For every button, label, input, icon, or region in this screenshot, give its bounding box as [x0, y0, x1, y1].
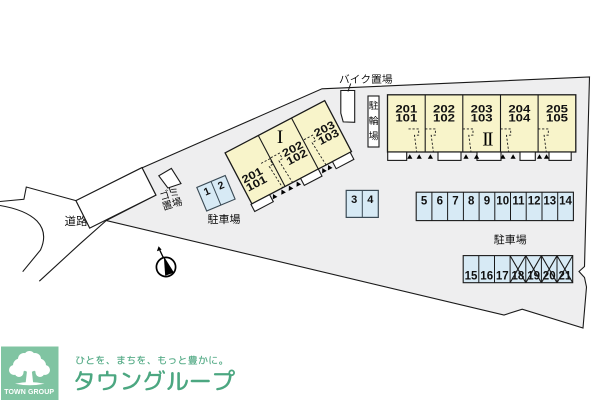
- svg-text:104: 104: [508, 112, 530, 125]
- svg-text:7: 7: [452, 196, 458, 208]
- svg-text:17: 17: [496, 271, 509, 283]
- svg-text:105: 105: [546, 112, 568, 125]
- svg-text:TOWN GROUP: TOWN GROUP: [4, 389, 54, 396]
- svg-text:II: II: [482, 130, 493, 151]
- svg-text:102: 102: [433, 112, 455, 125]
- svg-text:16: 16: [480, 271, 493, 283]
- svg-text:15: 15: [465, 271, 478, 283]
- svg-text:10: 10: [496, 196, 509, 208]
- svg-text:4: 4: [367, 194, 374, 206]
- svg-text:13: 13: [543, 196, 556, 208]
- svg-text:103: 103: [471, 112, 493, 125]
- svg-text:11: 11: [512, 196, 525, 208]
- svg-text:14: 14: [559, 196, 572, 208]
- svg-text:5: 5: [421, 196, 428, 208]
- svg-text:101: 101: [395, 112, 417, 125]
- svg-text:I: I: [277, 127, 283, 148]
- svg-text:8: 8: [468, 196, 475, 208]
- svg-text:12: 12: [528, 196, 541, 208]
- svg-text:3: 3: [351, 194, 357, 206]
- svg-text:6: 6: [437, 196, 443, 208]
- svg-text:9: 9: [484, 196, 490, 208]
